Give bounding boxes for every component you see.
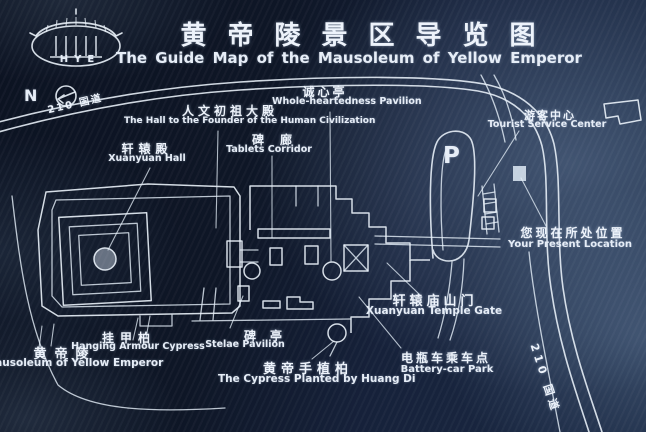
present-location-marker [513,166,526,181]
entrance-path [375,236,500,247]
parking-symbol: P [443,143,460,169]
wholeheartedness-pavilion-dot [323,262,341,280]
logo-letters: HYE [52,54,102,65]
xuanyuan-hall-dot [93,247,116,270]
compass-label: N [24,86,37,105]
guide-map-sign: 黄帝陵景区导览图 The Guide Map of the Mausoleum … [0,0,646,432]
huangdi-cypress-dot [328,324,346,342]
temple-complex [192,186,430,356]
map-title-zh: 黄帝陵景区导览图 [156,15,560,52]
tablets-corridor-bar [258,229,330,238]
mausoleum-complex [38,184,258,326]
tourist-center-building [604,100,641,124]
hanging-armour-cypress-dot [244,263,260,279]
map-title-en: The Guide Map of the Mausoleum of Yellow… [116,49,560,67]
battery-car-point [344,245,368,271]
